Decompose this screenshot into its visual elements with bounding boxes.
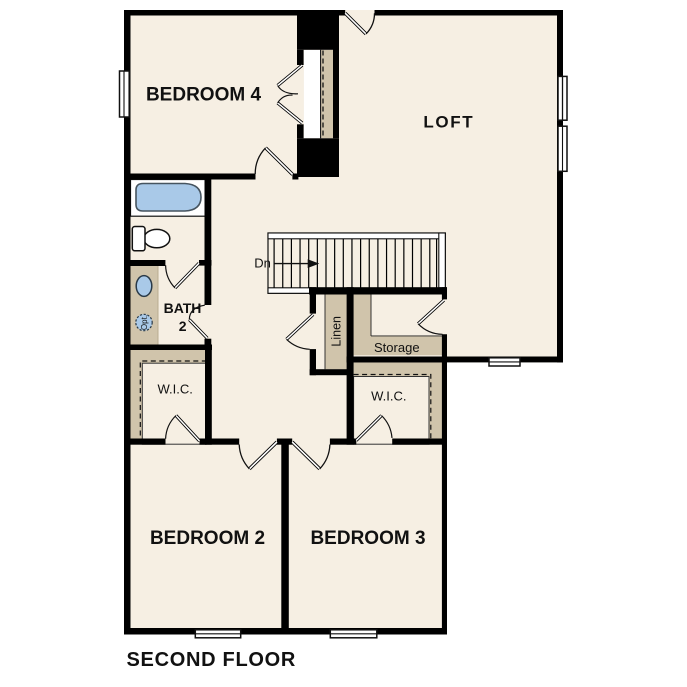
svg-text:LOFT: LOFT (423, 113, 474, 132)
svg-text:SECOND FLOOR: SECOND FLOOR (127, 649, 297, 671)
svg-text:Opt.: Opt. (140, 315, 149, 330)
svg-text:W.I.C.: W.I.C. (158, 381, 193, 396)
svg-text:BEDROOM 2: BEDROOM 2 (150, 528, 265, 549)
svg-text:Dn: Dn (254, 256, 271, 271)
svg-text:2: 2 (179, 318, 187, 334)
svg-text:BATH: BATH (164, 300, 202, 316)
svg-text:Storage: Storage (374, 340, 420, 355)
svg-text:BEDROOM 3: BEDROOM 3 (310, 528, 425, 549)
svg-text:W.I.C.: W.I.C. (371, 388, 406, 403)
svg-text:BEDROOM 4: BEDROOM 4 (146, 84, 262, 105)
svg-text:Linen: Linen (329, 316, 343, 347)
